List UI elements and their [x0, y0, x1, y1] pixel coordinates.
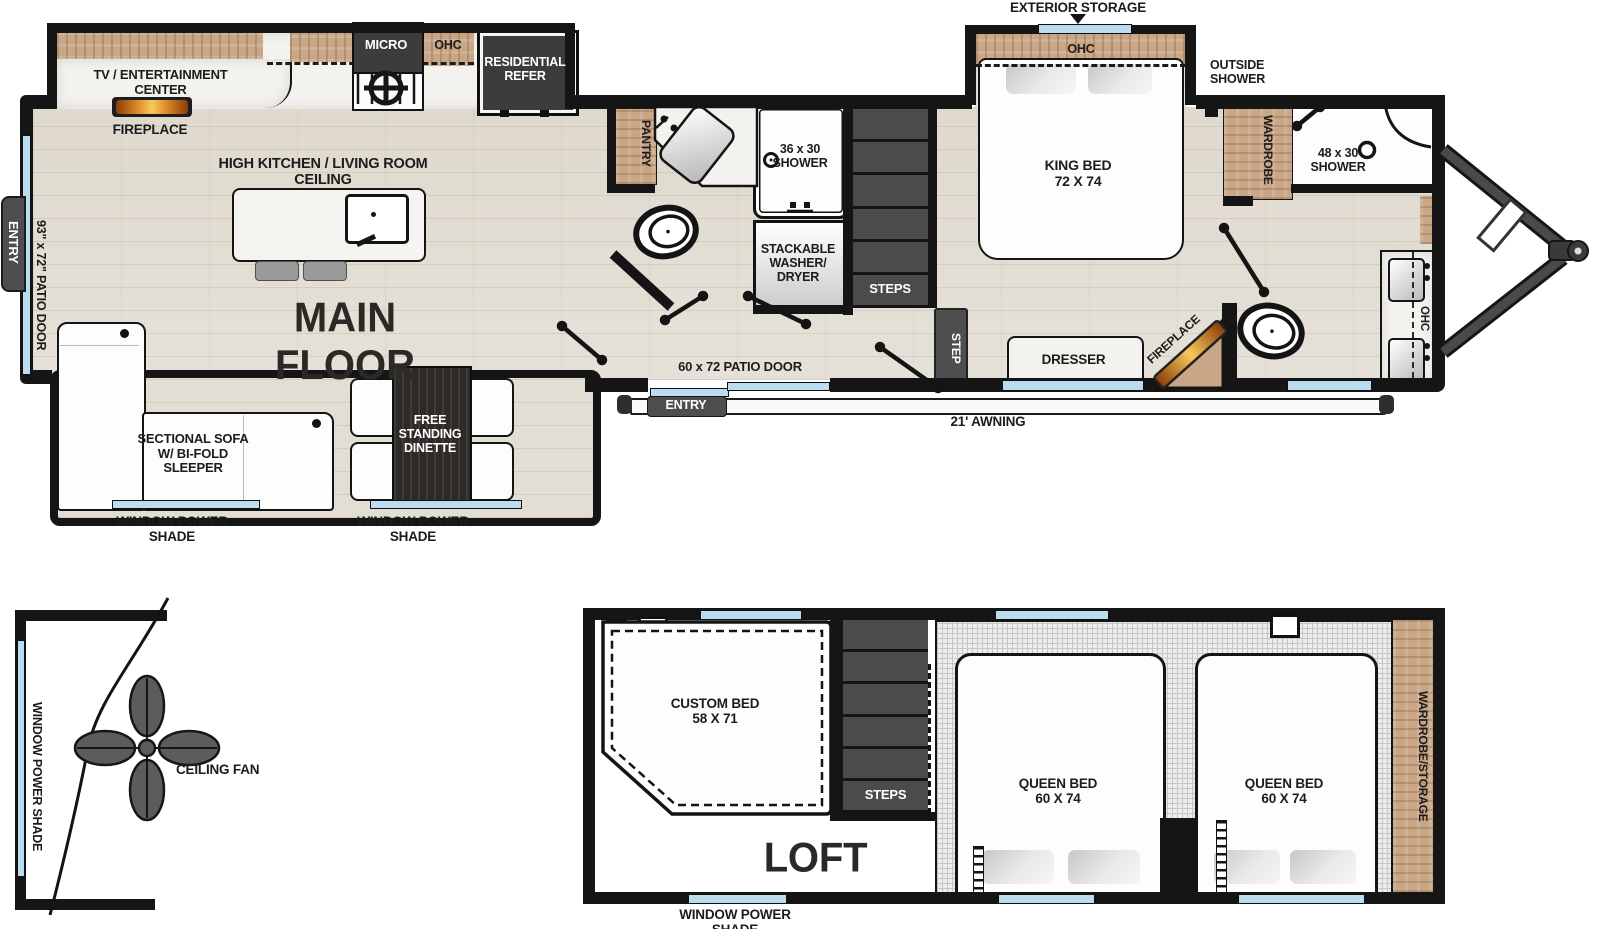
patio-door-panel-2 [727, 382, 830, 391]
ceiling-fan-label: CEILING FAN [176, 762, 296, 777]
loft-window-bottom-1 [688, 894, 787, 904]
awning-knob-left [617, 395, 632, 414]
exterior-storage-label: EXTERIOR STORAGE [978, 0, 1178, 15]
kitchen-slide-wall-top [47, 23, 575, 33]
loft-title: LOFT [738, 835, 893, 882]
step-tread [843, 717, 928, 749]
microwave-label: MICRO [352, 38, 420, 53]
step-tread [843, 749, 928, 781]
window-frontbath-bottom [1287, 380, 1372, 391]
kitchen-slide-wall-left [47, 23, 57, 109]
vanity-sink-top [1388, 258, 1425, 302]
window-sofa-right [370, 500, 522, 509]
linen-strip [1420, 196, 1432, 244]
window-king-slide [1038, 24, 1132, 34]
step-tread [852, 142, 928, 175]
ohc-bath-label: OHC [1414, 298, 1430, 338]
king-pillow-left [1006, 64, 1076, 94]
step-tread [843, 652, 928, 684]
ohc-kitchen-label: OHC [422, 38, 474, 52]
high-ceiling-label: HIGH KITCHEN / LIVING ROOM CEILING [192, 156, 454, 188]
step-single-label: STEP [936, 312, 962, 384]
entertainment-label: TV / ENTERTAINMENT CENTER [88, 68, 233, 97]
refrigerator-label: RESIDENTIAL REFER [477, 55, 573, 83]
step-tread [852, 175, 928, 208]
patio-door-60-label: 60 x 72 PATIO DOOR [660, 360, 820, 375]
wall-bottom-mid [585, 378, 648, 392]
dresser-label: DRESSER [1007, 352, 1140, 367]
step-tread [843, 684, 928, 716]
entry-bottom-label: ENTRY [647, 398, 725, 412]
step-tread [843, 620, 928, 652]
vent-icon [606, 620, 627, 637]
shower-mid-label: 36 x 30 SHOWER [762, 142, 838, 170]
wall-shower-front-bottom [1291, 184, 1432, 193]
loft-wall-left [583, 608, 595, 904]
vent-icon [638, 616, 668, 640]
ladder-icon [1216, 820, 1227, 894]
sofa-pillow-dot-2 [312, 419, 321, 428]
bath-wall-left-top [607, 103, 615, 191]
bath-wall-washer-bottom [753, 305, 853, 314]
island-stool-right [303, 261, 347, 281]
king-slide-wall-left [965, 25, 976, 105]
fan-wall-top [15, 610, 167, 621]
ohc-king-label: OHC [976, 42, 1186, 56]
wardrobe-storage-label: WARDROBE/STORAGE [1395, 640, 1429, 872]
loft-steps-wall-left [830, 620, 843, 814]
loft-window-bottom-2 [998, 894, 1095, 904]
loft-wall-right [1433, 608, 1445, 904]
sofa-label: SECTIONAL SOFA W/ BI-FOLD SLEEPER [128, 432, 258, 476]
pantry-label: PANTRY [618, 106, 652, 180]
steps-wall-right [928, 95, 937, 308]
king-slide-wall-right [1185, 25, 1196, 105]
shower-front-label: 48 x 30 SHOWER [1298, 146, 1378, 174]
step-tread [852, 109, 928, 142]
fan-shade-label: WINDOW POWER SHADE [28, 688, 44, 866]
steps-loft [843, 620, 928, 813]
dinette-chair-2 [350, 442, 397, 501]
queen-right-pillow-2 [1290, 850, 1356, 884]
custom-bed-label: CUSTOM BED 58 X 71 [640, 696, 790, 726]
refrigerator-wheel-right [540, 110, 549, 117]
dinette-label: FREE STANDING DINETTE [392, 413, 468, 455]
loft-window-bottom-3 [1238, 894, 1365, 904]
awning-knob-right [1379, 395, 1394, 414]
cabinet-mid [290, 33, 352, 62]
cooktop [352, 70, 424, 111]
sofa-chaise-seam [60, 345, 139, 346]
wardrobe-front-label: WARDROBE [1240, 106, 1274, 194]
outside-shower-label: OUTSIDE SHOWER [1210, 58, 1310, 86]
awning-bar [630, 398, 1386, 415]
wall-top-right [1196, 95, 1445, 109]
refrigerator-wheel-left [500, 110, 509, 117]
step-tread [852, 209, 928, 242]
steps-main [852, 109, 928, 308]
entertainment-cabinet [57, 33, 263, 61]
ohc-king-dashed [976, 64, 1186, 67]
hitch [1443, 150, 1588, 352]
washer-dryer-label: STACKABLE WASHER/ DRYER [755, 242, 841, 284]
ladder-icon [973, 846, 984, 894]
dinette-chair-3 [467, 378, 514, 437]
fan-wall-curve [50, 598, 168, 915]
window-shade-label-left: WINDOW POWER SHADE [92, 514, 252, 544]
bath-wall-pantry-bottom [607, 185, 655, 193]
wall-right-front-cap [1432, 95, 1445, 392]
loft-wall-between-beds [1160, 818, 1195, 894]
sofa-pillow-dot-1 [120, 329, 129, 338]
queen-left-pillow-2 [1068, 850, 1140, 884]
queen-left-pillow-1 [982, 850, 1054, 884]
island-tv-dot [371, 212, 376, 217]
vent-icon [1270, 614, 1300, 638]
floorplan-canvas: TV / ENTERTAINMENT CENTER MICRO OHC RESI… [0, 0, 1600, 929]
step-tread [852, 242, 928, 275]
loft-window-top-2 [995, 610, 1109, 620]
wall-wardrobe-bottom [1223, 196, 1253, 206]
queen-bed-left-label: QUEEN BED 60 X 74 [988, 776, 1128, 806]
fireplace-label: FIREPLACE [95, 122, 205, 137]
island-stool-left [255, 261, 299, 281]
loft-steps-wall-bottom [830, 812, 935, 821]
loft-shade-label: WINDOW POWER SHADE [655, 907, 815, 929]
king-pillow-right [1088, 64, 1152, 94]
patio-door-left-label: 93" x 72" PATIO DOOR [31, 178, 48, 393]
window-sofa-left [112, 500, 260, 509]
ceiling-fan-icon [75, 676, 219, 820]
king-bed-label: KING BED 72 X 74 [1008, 158, 1148, 189]
sofa-chaise [57, 322, 146, 511]
arrow-down-icon [1070, 14, 1086, 24]
vanity-sink-bottom [1388, 338, 1425, 382]
loft-window-top-1 [700, 610, 802, 620]
awning-label: 21' AWNING [928, 414, 1048, 429]
wall-front-jog [1205, 95, 1218, 117]
main-floor-title: MAIN FLOOR [225, 295, 465, 389]
fan-window [17, 640, 25, 877]
island-tv-icon [345, 194, 409, 244]
steps-loft-label: STEPS [843, 788, 928, 803]
window-shade-label-right: WINDOW POWER SHADE [333, 514, 493, 544]
fireplace-flames [116, 100, 188, 114]
window-bedroom-bottom [1002, 380, 1144, 391]
steps-main-label: STEPS [852, 282, 928, 297]
wall-bedroom-bath-divider [1222, 303, 1237, 392]
entry-left-label: ENTRY [3, 200, 20, 284]
dinette-chair-4 [467, 442, 514, 501]
loft-railing [928, 664, 931, 814]
queen-bed-right-label: QUEEN BED 60 X 74 [1214, 776, 1354, 806]
fan-wall-bottom [15, 899, 155, 910]
